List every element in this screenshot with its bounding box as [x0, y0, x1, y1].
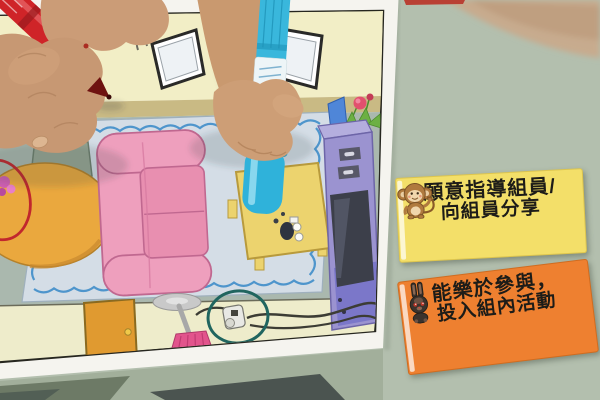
flower-bud	[367, 94, 374, 101]
door-knob	[125, 329, 131, 335]
skin-mark	[84, 44, 89, 49]
reward-card-yellow: 願意指導組員/ 向組員分享	[395, 168, 587, 263]
rabbit-icon	[398, 280, 439, 326]
photo-scene: { "scene": { "type": "photograph", "desc…	[0, 0, 600, 400]
power-outlet	[222, 304, 246, 329]
monkey-icon	[396, 178, 442, 220]
